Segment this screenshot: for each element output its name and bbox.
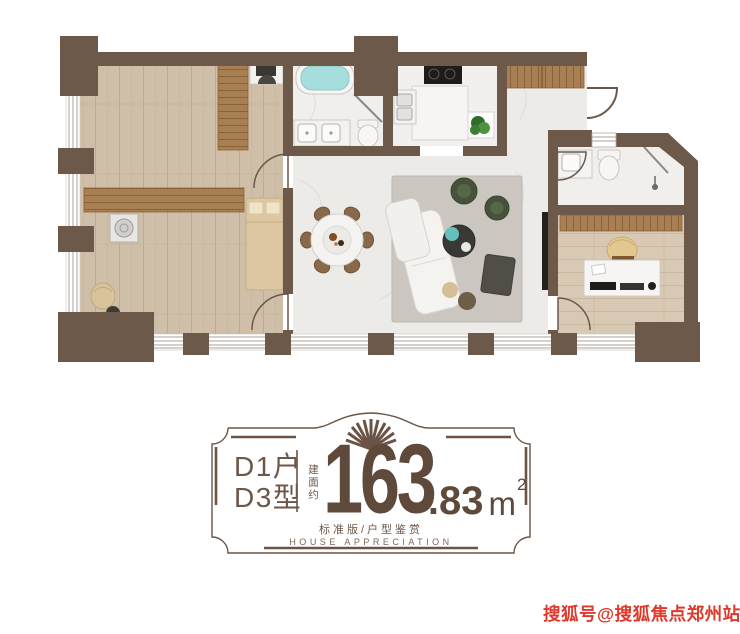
unit-type-line2: D3型	[234, 482, 302, 513]
badge-subtitle-cn: 标准版/户型鉴赏	[212, 521, 530, 537]
tv	[542, 212, 548, 290]
long-cabinet	[84, 188, 244, 212]
stool	[458, 292, 476, 310]
study-closet	[560, 215, 682, 231]
left-window	[66, 55, 80, 335]
floor-cushion	[442, 282, 458, 298]
bed	[246, 198, 283, 290]
mouse	[648, 282, 656, 290]
entry-door	[587, 88, 617, 118]
pillar-bottom-right	[635, 322, 700, 362]
top-wall	[95, 52, 587, 66]
area-figure: 建面约 163 .83 m2	[306, 420, 525, 518]
floor-plan	[0, 0, 740, 400]
ottoman	[481, 254, 516, 296]
area-unit-exponent: 2	[517, 475, 526, 494]
pillar-top-left	[60, 36, 98, 96]
unit-type-line1: D1户	[234, 451, 302, 482]
pillar-bottom-left	[58, 312, 154, 362]
cooktop	[424, 64, 462, 84]
shower-head	[652, 184, 658, 190]
badge-subtitle-en: HOUSE APPRECIATION	[212, 537, 530, 547]
unit-type-label: D1户 D3型	[234, 451, 302, 513]
area-decimal: .83	[428, 485, 484, 517]
hall-floor	[507, 130, 548, 156]
area-prefix-label: 建面约	[306, 464, 321, 510]
laptop	[590, 282, 616, 290]
area-integer: 163	[323, 441, 434, 518]
kitchen-island	[412, 86, 468, 140]
area-unit: m2	[488, 491, 525, 517]
screenshot-root: D1户 D3型 建面约 163 .83 m2 标准版/户型鉴赏 HOUSE AP…	[0, 0, 740, 634]
wardrobe	[218, 60, 248, 150]
watermark-text: 搜狐号@搜狐焦点郑州站	[543, 601, 740, 626]
bath-window	[592, 133, 616, 147]
pillar-top-center	[354, 36, 398, 96]
